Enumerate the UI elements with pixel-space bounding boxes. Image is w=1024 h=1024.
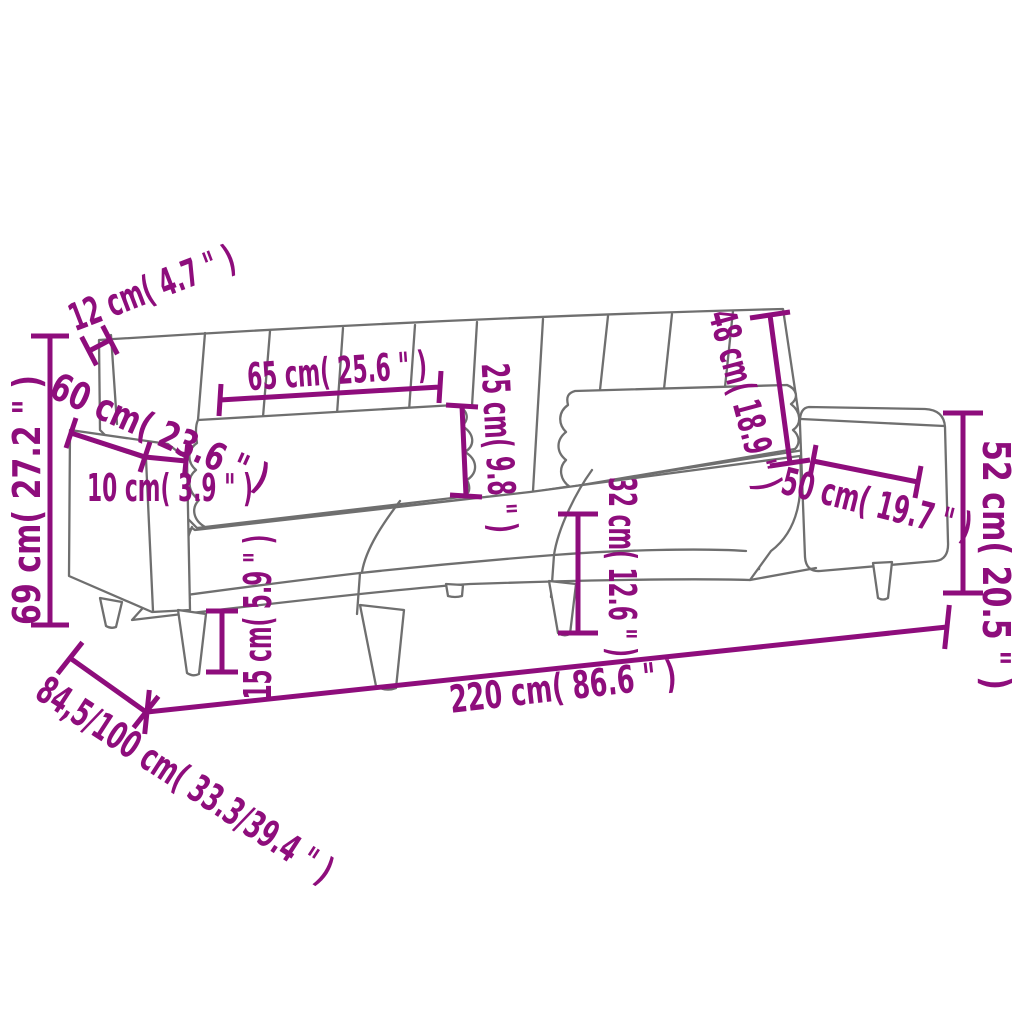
dimension-label-52cm: 52 cm( 20.5 " ) — [974, 440, 1018, 690]
dimension-label-32cm: 32 cm( 12.6 " ) — [600, 477, 644, 657]
leg-front-left — [178, 610, 206, 675]
dimension-label-12cm: 12 cm( 4.7 " ) — [62, 236, 241, 340]
leg-middle-right — [549, 581, 576, 635]
dimension-label-10cm: 10 cm( 3.9 " ) — [87, 466, 253, 510]
dimension-diagram-canvas: 12 cm( 4.7 " ) 60 cm( 23.6 " ) 69 cm( 27… — [0, 0, 1024, 1024]
dimension-label-69cm: 69 cm( 27.2 " ) — [5, 375, 49, 625]
foot-front-right — [446, 584, 463, 597]
dimension-label-220cm: 220 cm( 86.6 " ) — [447, 652, 679, 722]
dimension-label-15cm: 15 cm( 5.9 " ) — [236, 535, 280, 700]
dimension-armrest-height-52cm: 52 cm( 20.5 " ) — [943, 413, 1018, 690]
leg-front-middle — [360, 605, 404, 690]
sofa-right-leg — [873, 562, 892, 600]
leg-under-left-arm — [100, 598, 122, 628]
dimension-label-84cm: 84,5/100 cm( 33.3/39.4 " ) — [28, 668, 341, 893]
dimension-overall-depth-84cm: 84,5/100 cm( 33.3/39.4 " ) — [28, 642, 341, 892]
dimension-line-15cm — [206, 611, 238, 672]
dimension-label-25cm: 25 cm( 9.8 " ) — [473, 362, 526, 534]
product-dimension-diagram: 12 cm( 4.7 " ) 60 cm( 23.6 " ) 69 cm( 27… — [0, 0, 1024, 1024]
